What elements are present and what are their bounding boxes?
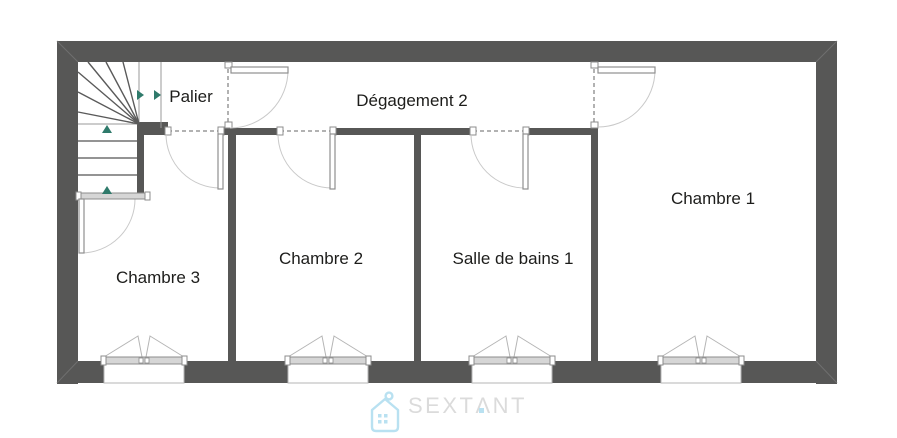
arrow-right-icon xyxy=(137,90,144,100)
window-salle-de-bains xyxy=(469,336,555,383)
door-palier xyxy=(230,67,288,128)
wall-left xyxy=(57,41,78,384)
room-label-salle-de-bains-1: Salle de bains 1 xyxy=(453,249,574,268)
brand-wordmark: SEXTΛNT xyxy=(408,393,527,418)
interior-walls xyxy=(137,122,598,361)
window-chambre2 xyxy=(285,336,371,383)
arrow-right-icon xyxy=(154,90,161,100)
wall-chambre3-chambre2 xyxy=(228,128,236,361)
stair-direction-arrows xyxy=(102,90,161,194)
wall-sdb-chambre1 xyxy=(591,128,598,361)
arrow-up-icon xyxy=(102,186,112,194)
wall-top xyxy=(57,41,837,62)
window-chambre3 xyxy=(101,336,187,383)
room-label-chambre-1: Chambre 1 xyxy=(671,189,755,208)
house-tag-icon xyxy=(372,393,398,431)
room-label-chambre-2: Chambre 2 xyxy=(279,249,363,268)
room-label-degagement-2: Dégagement 2 xyxy=(356,91,468,110)
door-chambre2 xyxy=(278,134,335,189)
wall-chambre2-sdb xyxy=(414,128,421,361)
door-chambre3 xyxy=(166,134,223,189)
door-stairs-chambre3 xyxy=(76,192,150,253)
floor-plan: Palier Dégagement 2 Chambre 1 Chambre 2 … xyxy=(0,0,897,438)
room-label-chambre-3: Chambre 3 xyxy=(116,268,200,287)
room-label-palier: Palier xyxy=(169,87,213,106)
door-chambre1 xyxy=(598,67,655,127)
house-tag-icon-windows xyxy=(378,414,388,424)
arrow-up-icon xyxy=(102,125,112,133)
stair-straight-treads xyxy=(78,141,137,175)
brand-lambda-dot xyxy=(479,408,484,413)
stair-winder-treads xyxy=(78,62,139,124)
brand-logo: SEXTΛNT xyxy=(372,393,527,431)
window-chambre1 xyxy=(658,336,744,383)
door-salle-de-bains xyxy=(471,134,528,189)
wall-right xyxy=(816,41,837,384)
